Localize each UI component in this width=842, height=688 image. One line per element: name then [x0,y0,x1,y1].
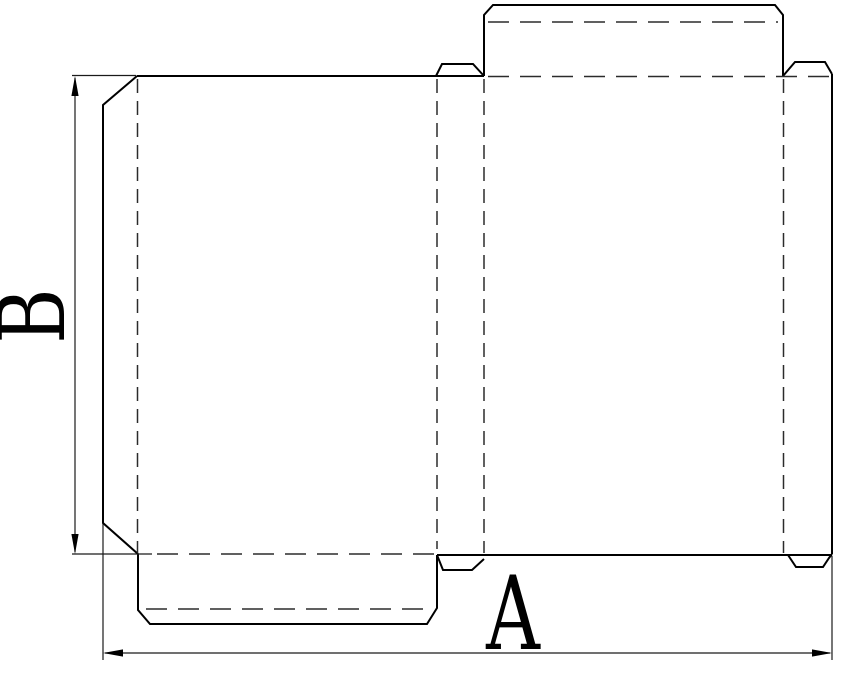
top-dust-flap-left [436,64,484,76]
dim-a-arrow-left [103,649,123,656]
dim-a-arrow-right [812,649,832,656]
bottom-tuck-flap [138,554,437,624]
top-dust-flap-right [783,62,832,76]
dim-b-label: B [0,288,86,343]
drawing-canvas: B A [0,0,842,688]
dimension-a: A [103,524,832,674]
dieline-drawing: B A [0,0,842,688]
dim-a-label: A [485,555,541,674]
dimension-b: B [0,76,152,555]
blank-outline [103,5,832,624]
bottom-dust-flap-left [437,555,484,570]
top-tuck-flap [484,5,783,76]
fold-lines [138,22,831,609]
dim-b-arrow-down [71,534,78,554]
dim-b-arrow-up [71,76,78,96]
glue-flap-outline [103,76,138,554]
